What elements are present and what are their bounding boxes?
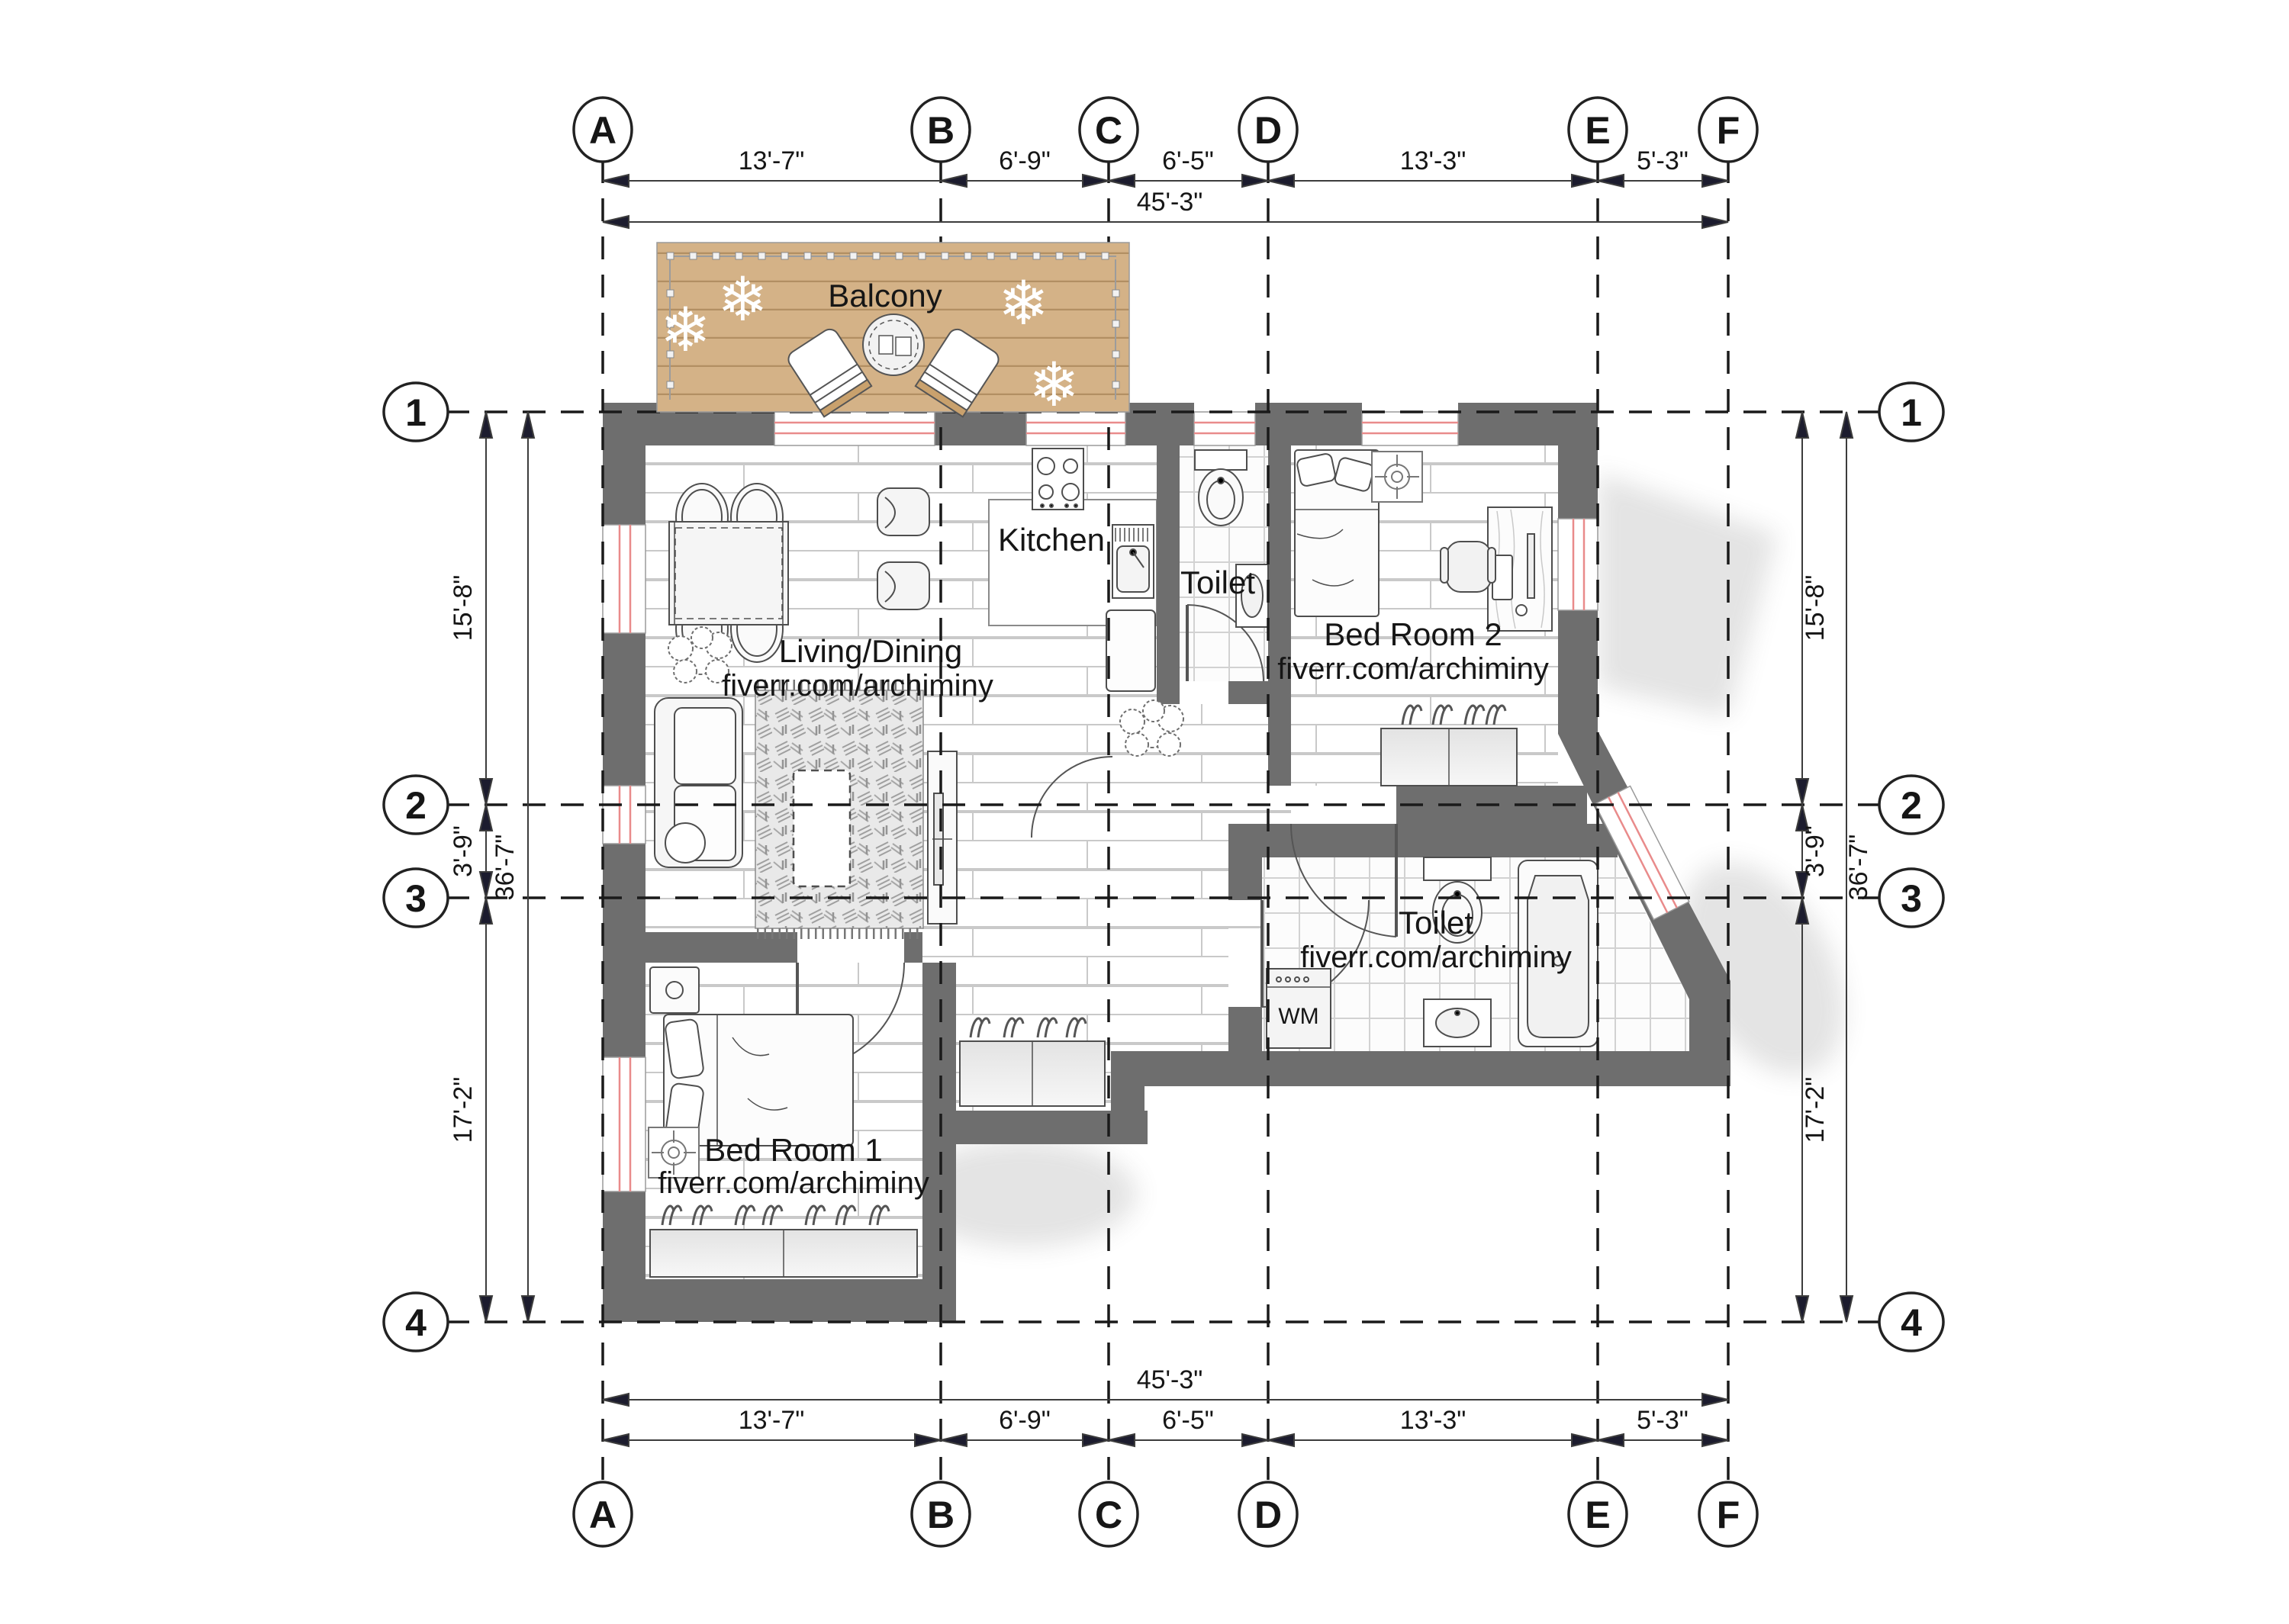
dim-right-23: 3'-9" [1801, 825, 1830, 877]
balcony-label: Balcony [828, 278, 942, 314]
toilet2-basin [1424, 999, 1491, 1047]
grid-bubble-3-right: 3 [1879, 869, 1943, 927]
dim-top-BC: 6'-9" [999, 146, 1051, 175]
bedroom2-bed [1295, 450, 1379, 616]
dim-right-34: 17'-2" [1801, 1077, 1830, 1143]
grid-bubble-A-top: A [574, 98, 632, 162]
grid-bubble-E-top: E [1569, 98, 1627, 162]
living-label: Living/Dining [779, 633, 962, 669]
dim-left-34: 17'-2" [449, 1077, 478, 1143]
svg-text:3: 3 [1901, 877, 1922, 920]
grid-bubble-1-left: 1 [384, 383, 448, 441]
grid-bubble-C-bottom: C [1080, 1482, 1138, 1546]
dining-table [669, 522, 788, 625]
dim-right-12: 15'-8" [1801, 575, 1830, 642]
dim-left-12: 15'-8" [449, 575, 478, 642]
grid-bubble-2-right: 2 [1879, 776, 1943, 834]
grid-bubble-B-top: B [912, 98, 970, 162]
bedroom2-label: Bed Room 2 [1324, 616, 1502, 652]
dim-top-EF: 5'-3" [1637, 146, 1689, 175]
sofa [655, 698, 742, 867]
svg-text:A: A [589, 109, 617, 152]
svg-text:2: 2 [405, 784, 427, 827]
bedroom1-label: Bed Room 1 [704, 1132, 882, 1168]
snowflake-icon: ❄ [717, 265, 768, 333]
window-left-mid [603, 786, 645, 844]
dim-bottom-overall: 45'-3" [1137, 1365, 1203, 1394]
nightstand [650, 967, 699, 1013]
toilet-bottom-label: Toilet [1399, 905, 1473, 941]
dim-left-23: 3'-9" [449, 825, 478, 877]
svg-text:3: 3 [405, 877, 427, 920]
floor-plan-page: ❄ ❄ ❄ ❄ Balcony Kitchen Toilet Living/Di… [0, 0, 2289, 1624]
grid-bubble-F-bottom: F [1699, 1482, 1757, 1546]
grid-bubble-3-left: 3 [384, 869, 448, 927]
kitchen-sink [1112, 525, 1154, 598]
window-top-3 [1194, 412, 1255, 445]
window-right-bedroom2 [1558, 519, 1598, 610]
svg-text:1: 1 [405, 391, 427, 434]
window-left-bedroom1 [603, 1057, 645, 1191]
svg-text:4: 4 [405, 1301, 427, 1344]
dim-bottom-BC: 6'-9" [999, 1406, 1051, 1435]
svg-text:F: F [1717, 109, 1740, 152]
dim-top-CD: 6'-5" [1162, 146, 1214, 175]
bedroom2-chair [1441, 542, 1495, 592]
svg-text:1: 1 [1901, 391, 1922, 434]
dim-right-overall: 36'-7" [1844, 835, 1873, 901]
stove [1032, 449, 1083, 510]
svg-text:B: B [927, 109, 955, 152]
coffee-table [794, 770, 850, 886]
svg-text:4: 4 [1901, 1301, 1922, 1344]
bedroom2-watermark: fiverr.com/archiminy [1277, 652, 1549, 686]
balcony: ❄ ❄ ❄ ❄ [657, 243, 1129, 419]
grid-bubble-4-left: 4 [384, 1293, 448, 1351]
toilet1-bidet [1195, 450, 1247, 526]
rug [755, 685, 923, 934]
grid-bubble-F-top: F [1699, 98, 1757, 162]
dim-top-DE: 13'-3" [1400, 146, 1466, 175]
grid-bubble-2-left: 2 [384, 776, 448, 834]
grid-bubble-C-top: C [1080, 98, 1138, 162]
snowflake-icon: ❄ [1029, 351, 1080, 419]
window-left-living [603, 525, 645, 633]
bedroom1-bed [664, 1015, 853, 1146]
toilet-top-label: Toilet [1180, 564, 1255, 600]
kitchen-label: Kitchen [998, 522, 1105, 558]
svg-text:F: F [1717, 1494, 1740, 1536]
svg-text:E: E [1585, 109, 1610, 152]
window-top-4 [1362, 412, 1458, 445]
dim-left-overall: 36'-7" [491, 835, 520, 901]
bedroom2-desk [1488, 507, 1552, 631]
svg-text:C: C [1095, 109, 1122, 152]
snowflake-icon: ❄ [660, 296, 711, 364]
svg-text:C: C [1095, 1494, 1122, 1536]
svg-text:2: 2 [1901, 784, 1922, 827]
dim-bottom-EF: 5'-3" [1637, 1406, 1689, 1435]
dim-bottom-AB: 13'-7" [739, 1406, 805, 1435]
floor-plan-canvas: ❄ ❄ ❄ ❄ Balcony Kitchen Toilet Living/Di… [0, 0, 2289, 1624]
dim-top-AB: 13'-7" [739, 146, 805, 175]
svg-text:A: A [589, 1494, 617, 1536]
grid-bubble-D-bottom: D [1239, 1482, 1297, 1546]
fridge [1106, 610, 1155, 691]
toilet-bottom-watermark: fiverr.com/archiminy [1300, 941, 1572, 974]
bedroom1-watermark: fiverr.com/archiminy [658, 1166, 929, 1200]
svg-text:E: E [1585, 1494, 1610, 1536]
grid-bubble-4-right: 4 [1879, 1293, 1943, 1351]
svg-text:D: D [1254, 1494, 1282, 1536]
ceiling-fan-bedroom2 [1372, 452, 1422, 502]
window-top-1 [774, 412, 935, 445]
dim-bottom-DE: 13'-3" [1400, 1406, 1466, 1435]
dim-bottom-CD: 6'-5" [1162, 1406, 1214, 1435]
washing-machine-label: WM [1278, 1004, 1318, 1029]
dim-top-overall: 45'-3" [1137, 188, 1203, 217]
svg-text:D: D [1254, 109, 1282, 152]
grid-bubble-B-bottom: B [912, 1482, 970, 1546]
svg-text:B: B [927, 1494, 955, 1536]
grid-bubble-1-right: 1 [1879, 383, 1943, 441]
living-watermark: fiverr.com/archiminy [722, 669, 993, 703]
snowflake-icon: ❄ [998, 269, 1049, 337]
grid-bubble-E-bottom: E [1569, 1482, 1627, 1546]
grid-bubble-A-bottom: A [574, 1482, 632, 1546]
grid-bubble-D-top: D [1239, 98, 1297, 162]
